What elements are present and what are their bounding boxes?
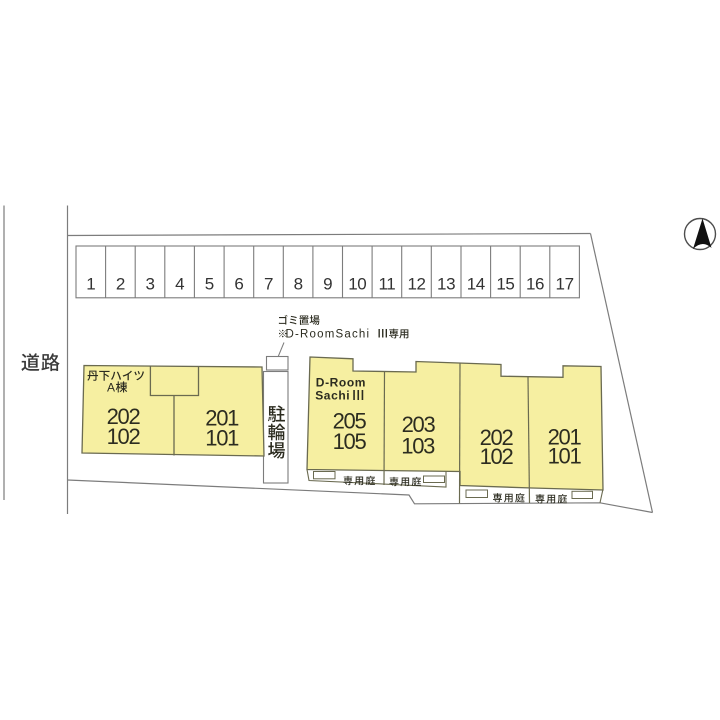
svg-text:Sachi: Sachi [315, 389, 350, 403]
svg-text:8: 8 [294, 275, 303, 294]
svg-text:5: 5 [205, 275, 214, 294]
svg-text:102: 102 [480, 444, 514, 469]
svg-text:9: 9 [323, 275, 332, 294]
svg-text:4: 4 [175, 275, 184, 294]
svg-text:13: 13 [437, 275, 455, 294]
svg-text:2: 2 [116, 275, 125, 294]
svg-text:16: 16 [526, 275, 544, 294]
svg-text:1: 1 [86, 275, 95, 294]
svg-text:A: A [107, 381, 115, 395]
svg-text:105: 105 [333, 429, 367, 454]
svg-text:103: 103 [401, 433, 435, 458]
svg-text:12: 12 [407, 275, 425, 294]
svg-text:7: 7 [264, 275, 273, 294]
svg-text:15: 15 [496, 275, 514, 294]
svg-text:D-RoomSachi: D-RoomSachi [286, 329, 371, 341]
svg-text:102: 102 [107, 424, 141, 449]
svg-text:101: 101 [548, 444, 582, 469]
svg-text:10: 10 [348, 275, 366, 294]
svg-text:14: 14 [467, 275, 485, 294]
svg-text:17: 17 [556, 275, 574, 294]
svg-text:D-Room: D-Room [316, 376, 366, 390]
svg-text:11: 11 [378, 275, 395, 294]
svg-text:101: 101 [205, 426, 239, 451]
svg-text:6: 6 [234, 275, 243, 294]
svg-text:3: 3 [145, 275, 154, 294]
